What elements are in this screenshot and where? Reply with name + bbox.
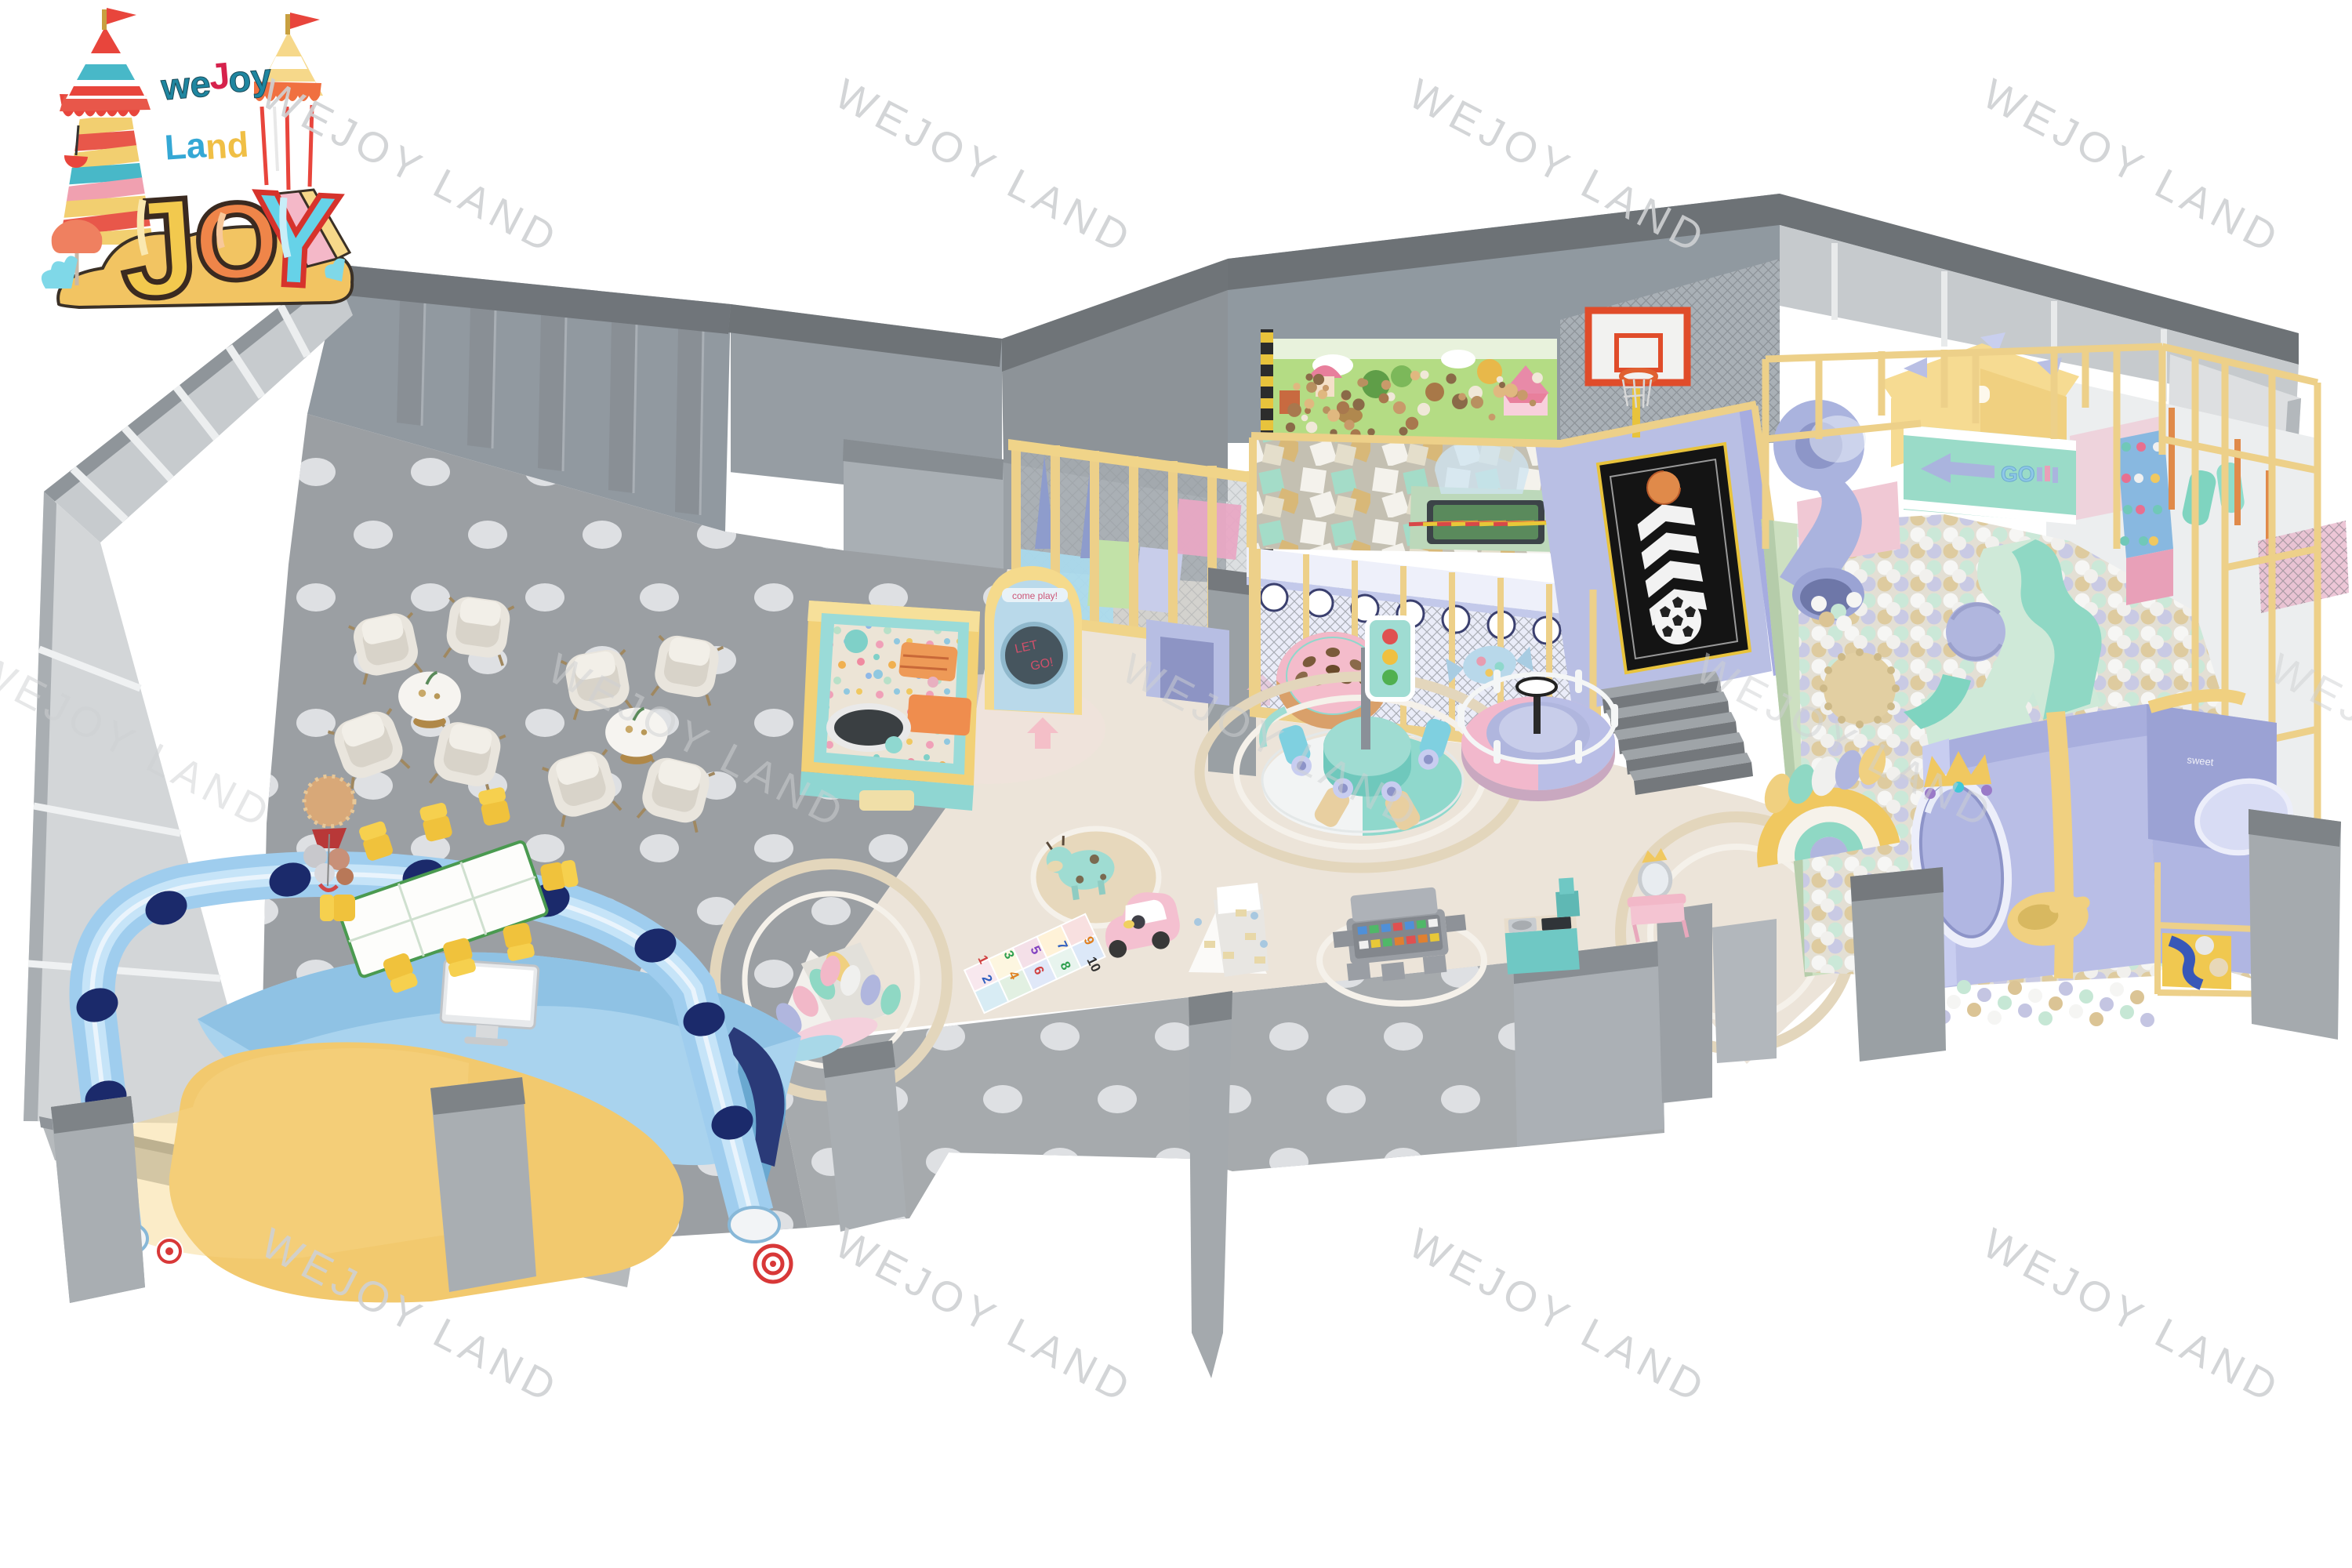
svg-text:GO: GO — [2001, 462, 2035, 486]
svg-text:come play!: come play! — [1012, 590, 1058, 601]
svg-text:nd: nd — [204, 124, 249, 167]
svg-text:Y: Y — [248, 164, 343, 316]
svg-text:La: La — [163, 125, 208, 168]
svg-text:J: J — [114, 168, 203, 328]
svg-text:we: we — [159, 62, 212, 107]
